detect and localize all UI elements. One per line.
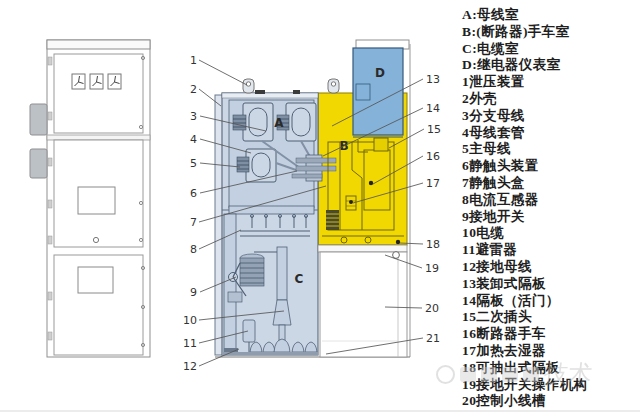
callout-9: 9 — [190, 286, 197, 299]
hinge-block-lower — [30, 149, 47, 178]
callout-4: 4 — [190, 133, 197, 146]
legend-item: 16断路器手车 — [462, 326, 638, 343]
legend-item: 18可抽出式隔板 — [462, 360, 638, 377]
callout-15: 15 — [427, 123, 441, 136]
callout-21: 21 — [426, 332, 440, 345]
legend-item: D:继电器仪表室 — [462, 57, 638, 74]
relay-compartment — [353, 48, 403, 137]
callout-12: 12 — [183, 360, 197, 373]
legend-item: 3分支母线 — [462, 108, 638, 125]
callout-10: 10 — [183, 314, 197, 327]
compartment-d-label: D — [375, 66, 385, 80]
pressure-relief-vent — [255, 90, 265, 94]
compartment-floor — [222, 352, 318, 355]
callout-2: 2 — [190, 83, 197, 96]
legend-item: 8电流互感器 — [462, 192, 638, 209]
meter-gauges — [72, 74, 121, 89]
legend-item: 20控制小线槽 — [462, 393, 638, 410]
switchgear-diagram-page: A D B — [0, 0, 640, 417]
pressure-relief-vent — [293, 90, 300, 94]
legend-item: 13装卸式隔板 — [462, 276, 638, 293]
callout-7: 7 — [190, 216, 197, 229]
cabinet-top-cap — [47, 40, 150, 49]
lower-front-door-area — [320, 252, 407, 357]
callout-3: 3 — [190, 110, 197, 123]
legend-item: 10电缆 — [462, 225, 638, 242]
legend: A:母线室 B:(断路器)手车室 C:电缆室 D:继电器仪表室 1泄压装置 2外… — [462, 7, 638, 410]
callout-19: 19 — [425, 262, 439, 275]
callout-18: 18 — [426, 238, 440, 251]
legend-item: 17加热去湿器 — [462, 343, 638, 360]
legend-item: 6静触头装置 — [462, 158, 638, 175]
legend-item: 5主母线 — [462, 141, 638, 158]
middle-door-window — [78, 187, 115, 214]
legend-item: B:(断路器)手车室 — [462, 24, 638, 41]
legend-item: 2外壳 — [462, 91, 638, 108]
compartment-a-label: A — [274, 116, 284, 130]
door-separator — [47, 135, 150, 140]
legend-item: 11避雷器 — [462, 242, 638, 259]
legend-item: 14隔板（活门） — [462, 293, 638, 310]
bottom-edge-strip — [0, 410, 640, 412]
callout-17: 17 — [426, 177, 440, 190]
legend-item: 9接地开关 — [462, 209, 638, 226]
callout-1: 1 — [190, 54, 197, 67]
legend-item: C:电缆室 — [462, 41, 638, 58]
callout-14: 14 — [426, 102, 440, 115]
legend-item: 12接地母线 — [462, 259, 638, 276]
lower-door-window — [78, 267, 113, 293]
callout-13: 13 — [426, 73, 440, 86]
upper-door — [54, 54, 143, 133]
legend-item: 7静触头盒 — [462, 175, 638, 192]
callout-5: 5 — [190, 157, 197, 170]
callout-6: 6 — [190, 187, 197, 200]
hinge-block-upper — [30, 104, 47, 135]
callout-16: 16 — [426, 150, 440, 163]
cabinet-front-view — [30, 40, 150, 357]
callout-8: 8 — [190, 243, 197, 256]
cross-section: A D B — [183, 40, 441, 373]
legend-item: A:母线室 — [462, 7, 638, 24]
removable-partition — [318, 245, 407, 252]
top-plate — [222, 93, 318, 98]
legend-item: 1泄压装置 — [462, 74, 638, 91]
legend-item: 4母线套管 — [462, 125, 638, 142]
legend-item: 15二次插头 — [462, 309, 638, 326]
callout-20: 20 — [425, 302, 439, 315]
callout-11: 11 — [183, 337, 197, 350]
earthing-switch-mechanism — [393, 252, 400, 259]
compartment-c-label: C — [295, 272, 304, 286]
legend-item: 19接地开关操作机构 — [462, 377, 638, 394]
